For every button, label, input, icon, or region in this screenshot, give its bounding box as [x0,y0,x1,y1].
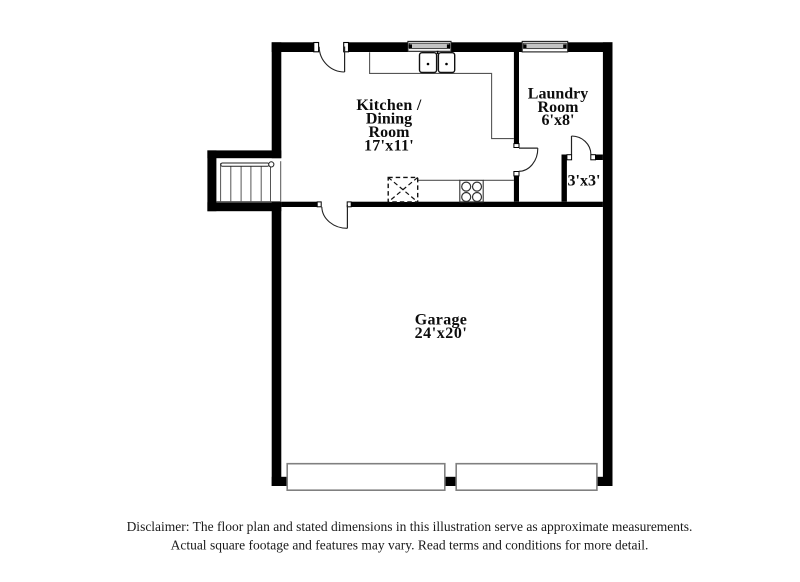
svg-text:Disclaimer: The floor plan and: Disclaimer: The floor plan and stated di… [127,519,693,534]
svg-text:24'x20': 24'x20' [415,325,468,342]
svg-text:17'x11': 17'x11' [364,138,414,155]
svg-text:3'x3': 3'x3' [568,173,601,190]
svg-text:6'x8': 6'x8' [542,112,575,129]
svg-text:Actual square footage and feat: Actual square footage and features may v… [171,538,649,553]
